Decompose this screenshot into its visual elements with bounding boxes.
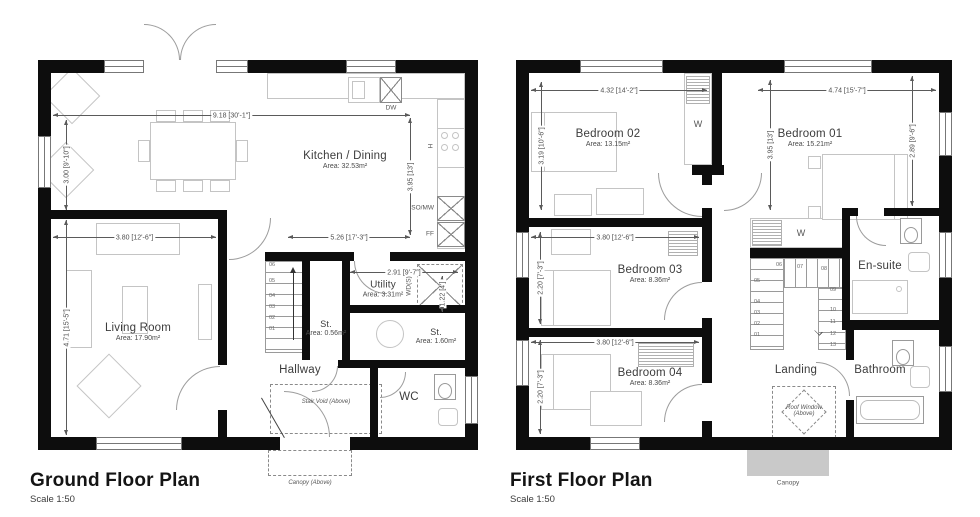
room-label-living-room: Living Room Area: 17.90m²	[105, 322, 171, 342]
room-area: Area: 1.60m²	[416, 338, 456, 345]
canopy-label: Canopy (Above)	[288, 480, 331, 486]
wardrobe-label: W	[694, 119, 703, 129]
patio-door-arc	[180, 24, 216, 60]
tv-unit	[198, 284, 212, 340]
fridge-freezer	[437, 222, 465, 247]
stair-number: 04	[754, 299, 760, 305]
basin	[908, 252, 930, 272]
dim-bedroom02-width: 4.32 [14'-2"]	[531, 90, 707, 91]
wall	[842, 320, 952, 330]
dim-label: 3.80 [12'-6"]	[594, 235, 635, 242]
window	[580, 60, 663, 73]
canopy-label: Canopy	[777, 480, 799, 487]
wall	[390, 252, 465, 261]
toilet	[900, 218, 922, 244]
room-label-utility: Utility Area: 3.31m²	[363, 280, 403, 299]
wall	[842, 208, 850, 320]
room-name: WC	[399, 391, 419, 403]
stair-number: 13	[830, 342, 836, 348]
drawers	[596, 188, 644, 215]
dim-label: 3.95 [13']	[768, 129, 775, 162]
bathtub	[856, 396, 924, 424]
dim-label: 2.91 [9'-7"]	[385, 270, 422, 277]
wall	[350, 305, 465, 313]
ensuite-door-arc	[856, 216, 886, 246]
bedside-table	[808, 156, 821, 169]
window	[939, 112, 952, 156]
room-name: Bedroom 02	[576, 128, 641, 140]
ground-floor-plan: 06 05 04 03 02 01 DW H SO/MW FF WD(S)	[38, 60, 478, 450]
room-name: Bathroom	[854, 364, 905, 376]
floorplan-page: 06 05 04 03 02 01 DW H SO/MW FF WD(S)	[0, 0, 980, 517]
wardrobe-shelves	[638, 343, 694, 367]
room-label-bedroom04: Bedroom 04 Area: 8.36m²	[618, 367, 683, 387]
dining-chair	[156, 110, 176, 122]
dim-bedroom04-depth: 2.20 [7'-3"]	[540, 340, 541, 434]
wall	[38, 60, 51, 450]
dim-label: 5.26 [17'-3"]	[328, 235, 369, 242]
dim-label: 3.80 [12'-6"]	[114, 235, 155, 242]
room-label-ensuite: En-suite	[858, 260, 902, 272]
dim-bedroom01-width: 4.74 [15'-7"]	[758, 90, 936, 91]
first-floor-plan: W W 01 02 03 04 05 06 07 08 09 10 11 12 …	[516, 60, 952, 450]
basin	[910, 366, 930, 388]
wall	[342, 261, 350, 360]
kitchen-sink-bowl	[352, 81, 365, 99]
wall	[702, 337, 712, 383]
canopy	[747, 450, 829, 476]
wardrobe-label: W	[797, 228, 806, 238]
washer-dryer-label: WD(S)	[406, 276, 413, 296]
room-area: Area: 3.31m²	[363, 292, 403, 299]
room-name: Living Room	[105, 322, 171, 334]
shower-drain	[896, 286, 902, 292]
dim-label: 3.95 [13']	[408, 160, 415, 193]
dining-table	[150, 122, 236, 180]
dim-label: 3.00 [9'-10"]	[64, 144, 71, 185]
stair-number: 03	[269, 304, 275, 310]
room-name: Bedroom 04	[618, 367, 683, 379]
room-area: Area: 15.21m²	[778, 141, 843, 148]
room-area: Area: 32.53m²	[303, 163, 387, 170]
wall	[702, 421, 712, 437]
hob-ring	[441, 144, 448, 151]
dining-chair	[210, 180, 230, 192]
ground-floor-scale: Scale 1:50	[30, 494, 75, 505]
dishwasher	[380, 77, 402, 103]
roof-window-label: Roof Window (Above)	[777, 405, 831, 417]
dim-label: 4.74 [15'-7"]	[826, 88, 867, 95]
wall	[516, 437, 952, 450]
window	[96, 437, 182, 450]
wall	[529, 218, 712, 227]
room-area: Area: 8.36m²	[618, 380, 683, 387]
hob-label: H	[428, 144, 435, 149]
wall	[51, 210, 218, 219]
dining-chair	[156, 180, 176, 192]
window	[590, 437, 640, 450]
stair-number: 05	[754, 278, 760, 284]
stair-number: 06	[269, 262, 275, 268]
window	[516, 340, 529, 386]
wall	[702, 227, 712, 282]
dining-chair	[183, 180, 203, 192]
window	[346, 60, 396, 73]
stair-number: 06	[776, 262, 782, 268]
stair-up-arrowhead	[290, 267, 296, 273]
stair-number: 12	[830, 331, 836, 337]
hob-ring	[452, 132, 459, 139]
window	[939, 346, 952, 392]
stair-number: 05	[269, 278, 275, 284]
window	[104, 60, 144, 73]
dim-label: 2.20 [7'-3"]	[538, 368, 545, 405]
dim-kitchen-width: 5.26 [17'-3"]	[288, 237, 410, 238]
desk	[551, 229, 591, 255]
room-name: St.	[306, 319, 346, 329]
stair-number: 11	[830, 319, 836, 325]
room-name: St.	[416, 327, 456, 337]
room-name: Bedroom 01	[778, 128, 843, 140]
armchair	[76, 353, 141, 418]
dim-label: 3.80 [12'-6"]	[594, 340, 635, 347]
room-label-bedroom01: Bedroom 01 Area: 15.21m²	[778, 128, 843, 148]
desk	[590, 391, 642, 426]
room-name: Landing	[775, 364, 817, 376]
room-name: Utility	[363, 280, 403, 291]
wall	[370, 368, 378, 437]
single-oven-microwave	[437, 196, 465, 221]
dim-dining-depth: 3.00 [9'-10"]	[66, 120, 67, 210]
wardrobe-shelves	[752, 220, 782, 246]
room-label-store-1: St. Area: 0.56m²	[306, 319, 346, 337]
dim-living-width: 3.80 [12'-6"]	[53, 237, 216, 238]
dining-chair	[236, 140, 248, 162]
window	[516, 232, 529, 278]
bedroom04-door-arc	[664, 384, 702, 422]
stair-number: 01	[269, 326, 275, 332]
hob-ring	[441, 132, 448, 139]
dim-overall-width: 9.18 [30'-1"]	[53, 115, 410, 116]
room-name: Hallway	[279, 364, 321, 376]
wall	[265, 252, 354, 261]
room-area: Area: 17.90m²	[105, 335, 171, 342]
dim-bedroom03-width: 3.80 [12'-6"]	[531, 237, 699, 238]
ground-floor-title: Ground Floor Plan	[30, 470, 200, 492]
stair-number: 02	[754, 321, 760, 327]
stair-number: 10	[830, 307, 836, 313]
room-name: Kitchen / Dining	[303, 150, 387, 162]
patio-door-opening	[144, 60, 216, 73]
room-name: Bedroom 03	[618, 264, 683, 276]
canopy-outline	[268, 450, 352, 476]
room-area: Area: 13.15m²	[576, 141, 641, 148]
wall	[712, 73, 722, 165]
window	[939, 232, 952, 278]
stair-number: 02	[269, 315, 275, 321]
wall	[846, 400, 854, 437]
room-name: En-suite	[858, 260, 902, 272]
room-label-landing: Landing	[775, 364, 817, 376]
dim-label: 1.22 [4']	[440, 280, 447, 309]
stair-number: 04	[269, 293, 275, 299]
stair-number: 08	[821, 266, 827, 272]
toilet	[892, 340, 914, 366]
staircase-run	[784, 258, 846, 288]
bedside-table	[808, 206, 821, 219]
wall	[850, 208, 858, 216]
dim-label: 4.71 [15'-5"]	[64, 307, 71, 348]
room-label-bedroom02: Bedroom 02 Area: 13.15m²	[576, 128, 641, 148]
dim-label: 2.20 [7'-3"]	[538, 259, 545, 296]
first-floor-scale: Scale 1:50	[510, 494, 555, 505]
dim-bedroom01-depth: 3.95 [13']	[770, 80, 771, 210]
stair-number: 09	[830, 287, 836, 293]
dim-label: 4.32 [14'-2"]	[598, 88, 639, 95]
room-label-bathroom: Bathroom	[854, 364, 905, 376]
window	[38, 136, 51, 188]
wall	[884, 208, 939, 216]
wall	[338, 360, 465, 368]
dining-chair	[183, 110, 203, 122]
stair-number: 07	[797, 264, 803, 270]
room-label-wc: WC	[399, 391, 419, 403]
wall	[529, 328, 712, 337]
dim-utility-width: 2.91 [9'-7"]	[350, 272, 458, 273]
patio-door-arc	[144, 24, 180, 60]
wall	[302, 261, 310, 360]
drawers	[554, 194, 592, 216]
wall	[846, 330, 854, 360]
wall	[750, 248, 848, 258]
dim-living-depth: 4.71 [15'-5"]	[66, 220, 67, 435]
room-label-store-2: St. Area: 1.60m²	[416, 327, 456, 345]
window	[784, 60, 872, 73]
bedroom01-door-arc	[724, 173, 762, 211]
dim-kitchen-depth: 3.95 [13']	[410, 118, 411, 235]
bedroom03-door-arc	[664, 282, 702, 320]
stair-number: 01	[754, 332, 760, 338]
room-area: Area: 8.36m²	[618, 277, 683, 284]
basin	[438, 408, 458, 426]
stair-void-label: Stair Void (Above)	[302, 399, 350, 405]
oven-microwave-label: SO/MW	[411, 205, 434, 212]
dishwasher-label: DW	[386, 105, 397, 112]
dim-bedroom04-width: 3.80 [12'-6"]	[531, 342, 699, 343]
fridge-freezer-label: FF	[426, 231, 434, 238]
room-area: Area: 0.56m²	[306, 330, 346, 337]
toilet	[434, 374, 456, 400]
first-floor-title: First Floor Plan	[510, 470, 653, 492]
dim-bedroom03-depth: 2.20 [7'-3"]	[540, 232, 541, 324]
bedroom02-door-arc	[658, 173, 702, 217]
front-door-opening	[280, 437, 350, 450]
dim-bedroom01-bed-width: 2.89 [9'-6"]	[912, 76, 913, 206]
hob-ring	[452, 144, 459, 151]
dim-label: 9.18 [30'-1"]	[211, 113, 252, 120]
wall	[218, 410, 227, 437]
wall	[218, 210, 227, 365]
dim-bedroom02-depth: 3.19 [10'-6"]	[541, 82, 542, 210]
dim-label: 2.89 [9'-6"]	[910, 122, 917, 159]
dining-chair	[138, 140, 150, 162]
stair-up-arrow	[293, 272, 294, 340]
dim-label: 3.19 [10'-6"]	[539, 125, 546, 166]
bathroom-door-arc	[816, 362, 850, 396]
room-label-bedroom03: Bedroom 03 Area: 8.36m²	[618, 264, 683, 284]
room-label-hallway: Hallway	[279, 364, 321, 376]
dim-store-width: 1.22 [4']	[442, 276, 443, 312]
room-label-kitchen-dining: Kitchen / Dining Area: 32.53m²	[303, 150, 387, 170]
window	[216, 60, 248, 73]
living-room-door-arc	[176, 366, 220, 410]
stair-number: 03	[754, 310, 760, 316]
window	[465, 376, 478, 424]
hot-water-cylinder	[376, 320, 404, 348]
wall	[702, 175, 712, 185]
